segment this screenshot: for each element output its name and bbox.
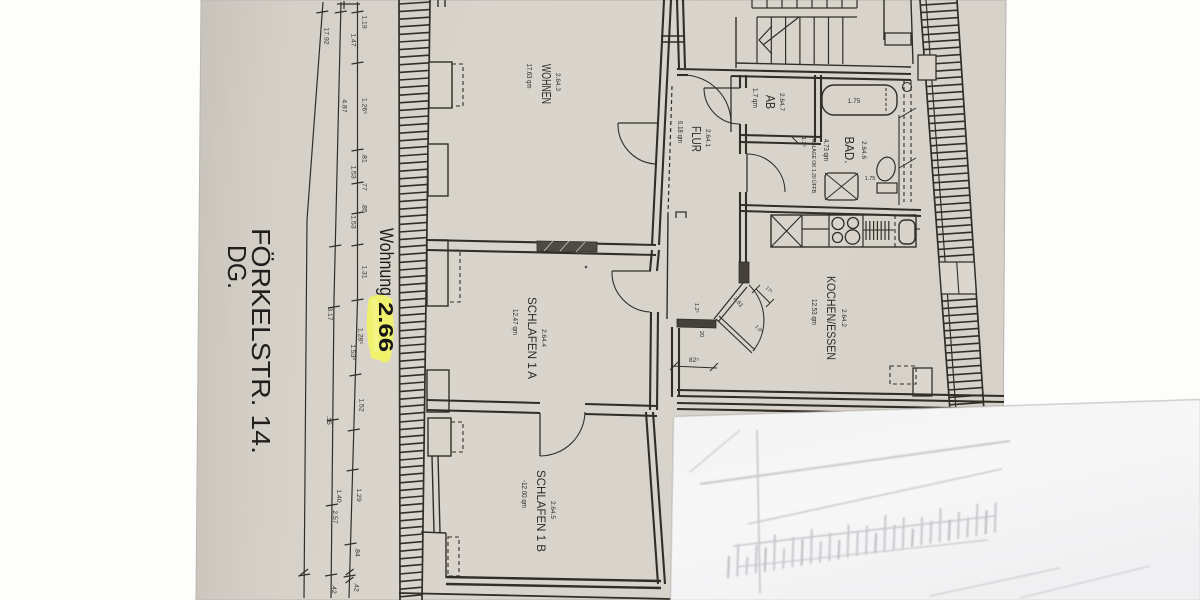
- svg-text:3.17: 3.17: [326, 307, 333, 320]
- svg-text:20: 20: [698, 331, 704, 337]
- svg-text:1.75: 1.75: [848, 98, 861, 105]
- svg-text:1.31: 1.31: [361, 265, 368, 278]
- svg-text:1.52: 1.52: [358, 398, 365, 411]
- svg-text:2.57: 2.57: [331, 510, 338, 523]
- svg-text:1.7 qm: 1.7 qm: [751, 88, 758, 108]
- svg-text:2.64.3: 2.64.3: [554, 73, 561, 91]
- svg-text:4.87: 4.87: [341, 99, 348, 112]
- svg-text:AB: AB: [763, 95, 777, 109]
- svg-text:.85: .85: [361, 203, 368, 213]
- svg-text:1.75: 1.75: [865, 176, 876, 182]
- svg-text:KOCHEN/ESSEN: KOCHEN/ESSEN: [824, 276, 836, 360]
- svg-text:82⁵: 82⁵: [689, 357, 699, 364]
- svg-text:1.26⁵: 1.26⁵: [361, 98, 368, 114]
- svg-text:1.29: 1.29: [355, 488, 362, 501]
- svg-text:12.53 qm: 12.53 qm: [810, 299, 817, 325]
- svg-text:.15: .15: [325, 415, 332, 425]
- svg-text:BAD.: BAD.: [842, 137, 857, 164]
- svg-text:ABLAGE OK 1.20 ÜFFB: ABLAGE OK 1.20 ÜFFB: [810, 139, 817, 194]
- svg-text:SCHLAFEN 1 A: SCHLAFEN 1 A: [525, 297, 537, 379]
- svg-text:WOHNEN: WOHNEN: [539, 64, 553, 104]
- svg-text:DG.: DG.: [222, 245, 252, 289]
- svg-text:2.64.6: 2.64.6: [860, 141, 867, 159]
- svg-text:4.73 qm: 4.73 qm: [822, 139, 829, 161]
- svg-text:.81: .81: [361, 153, 368, 163]
- svg-text:.42: .42: [330, 584, 337, 594]
- svg-text:.42: .42: [352, 582, 359, 592]
- svg-text:1.47: 1.47: [350, 33, 357, 46]
- svg-text:Wohnung: Wohnung: [375, 228, 396, 296]
- svg-text:.77: .77: [361, 181, 368, 191]
- svg-text:2.64.1: 2.64.1: [704, 129, 711, 147]
- svg-text:1.53³: 1.53³: [349, 344, 356, 360]
- svg-text:6.18 qm: 6.18 qm: [676, 121, 683, 143]
- svg-text:1.19: 1.19: [361, 15, 368, 28]
- svg-text:17.63 qm: 17.63 qm: [525, 64, 532, 89]
- svg-text:.84: .84: [353, 547, 360, 557]
- svg-text:17.92: 17.92: [323, 27, 330, 44]
- svg-text:2.64.2: 2.64.2: [840, 309, 847, 327]
- svg-text:2.64.7: 2.64.7: [778, 93, 785, 111]
- svg-text:1.53: 1.53: [350, 165, 357, 178]
- svg-text:1.2⁵: 1.2⁵: [800, 137, 807, 147]
- svg-text:12.47 qm: 12.47 qm: [511, 309, 518, 335]
- svg-text:-12.00 qm: -12.00 qm: [520, 480, 527, 508]
- svg-text:FLUR: FLUR: [689, 126, 703, 152]
- svg-text:1.40: 1.40: [335, 489, 342, 502]
- svg-text:2.66: 2.66: [374, 302, 396, 352]
- svg-text:1.2⁵: 1.2⁵: [693, 303, 700, 313]
- svg-text:1.28⁵: 1.28⁵: [357, 328, 364, 344]
- svg-text:2.64.5: 2.64.5: [549, 501, 556, 519]
- svg-text:2.64.4: 2.64.4: [540, 329, 547, 347]
- svg-text:SCHLAFEN 1 B: SCHLAFEN 1 B: [534, 470, 546, 552]
- svg-text:1.53: 1.53: [350, 215, 357, 228]
